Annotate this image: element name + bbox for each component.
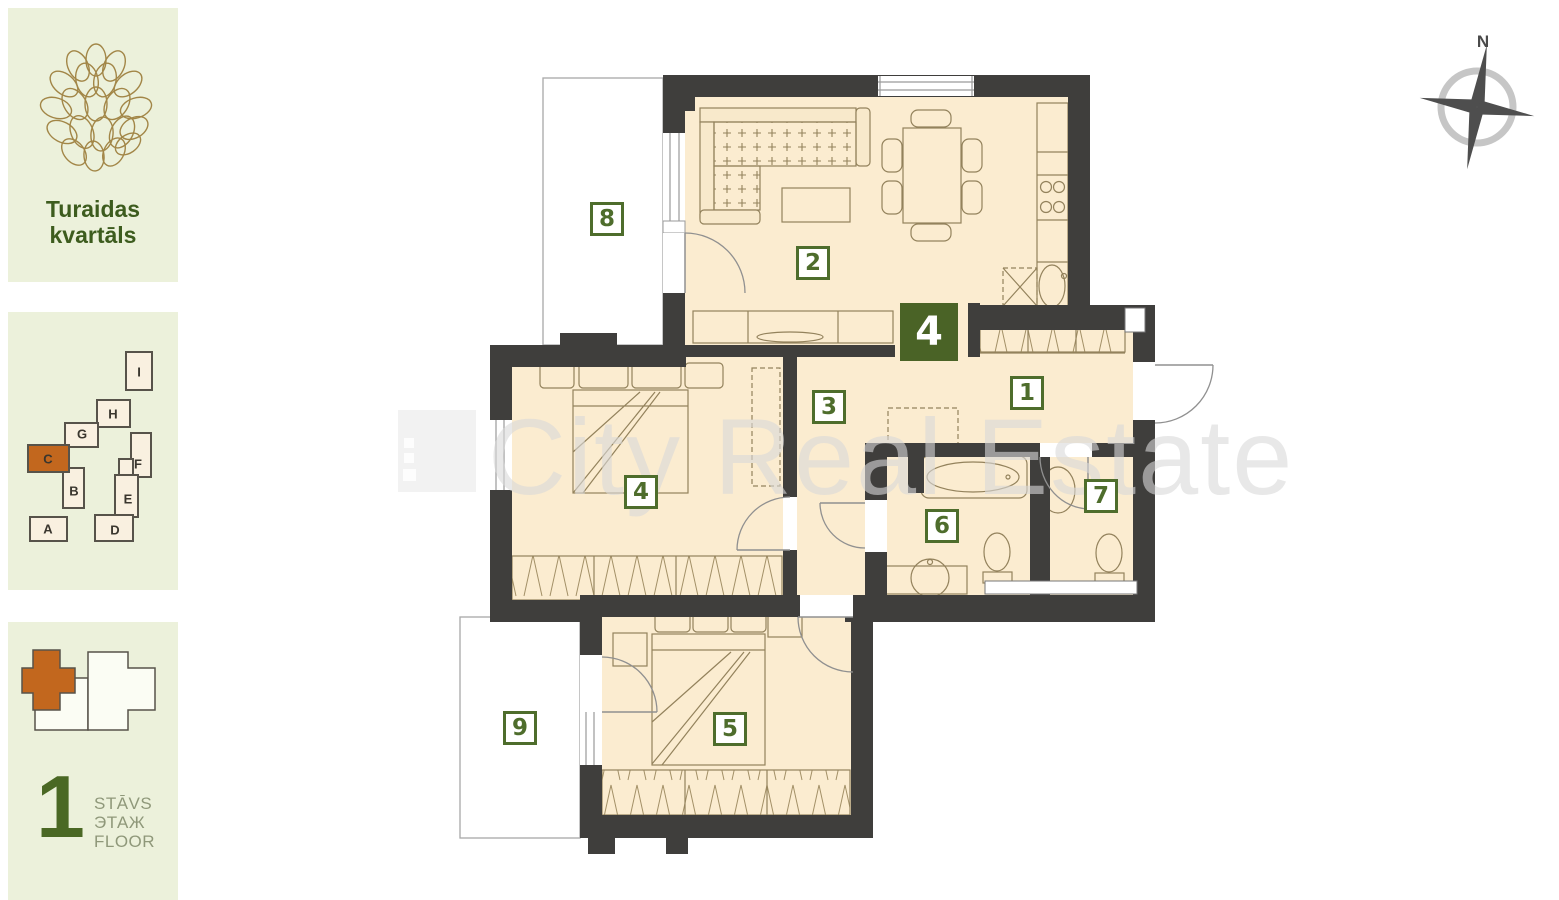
apartment-number-badge: 4	[900, 303, 958, 361]
watermark-text: City Real Estate	[488, 396, 1294, 517]
closet-room4	[512, 556, 782, 600]
room-badge-2: 2	[796, 246, 830, 280]
room-badge-8: 8	[590, 202, 624, 236]
room-badge-6: 6	[925, 509, 959, 543]
room-badge-5: 5	[713, 712, 747, 746]
watermark: City Real Estate	[398, 396, 1294, 517]
compass-north-label: N	[1468, 32, 1498, 52]
compass-icon	[1410, 36, 1544, 179]
room-badge-4: 4	[624, 475, 658, 509]
room-badge-3: 3	[812, 390, 846, 424]
floor-plan: City Real Estate	[0, 0, 1559, 900]
room-badge-1: 1	[1010, 376, 1044, 410]
room-badge-9: 9	[503, 711, 537, 745]
room-badge-7: 7	[1084, 479, 1118, 513]
closet-room5	[602, 770, 850, 815]
